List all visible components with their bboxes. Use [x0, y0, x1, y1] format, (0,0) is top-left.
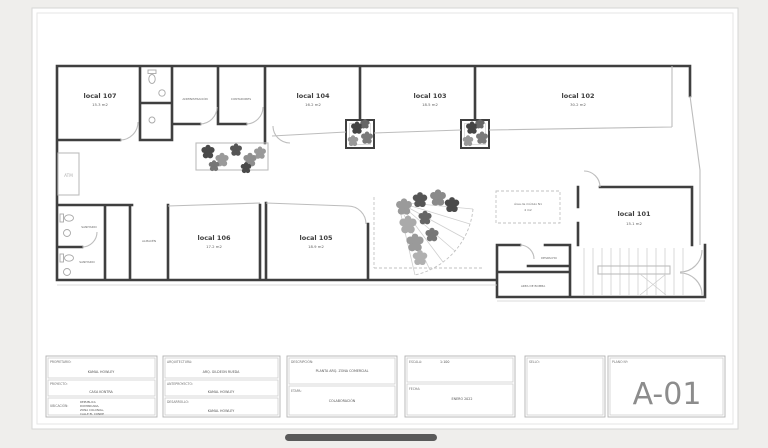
label-modulo-2: 4 m2 — [524, 208, 532, 212]
room-area-local-104: 16.2 m2 — [305, 102, 321, 107]
label-administracion: ADMINISTRACIÓN — [182, 96, 207, 101]
titleblock-anteproyecto-label: ANTEPROYECTO: — [167, 382, 193, 386]
titleblock-propietario-label: PROPIETARIO: — [50, 360, 71, 364]
titleblock-fecha-value: ENERO 2022 — [452, 397, 473, 401]
titleblock-escala-label: ESCALA: — [409, 360, 422, 364]
room-area-local-102: 30.2 m2 — [570, 102, 586, 107]
floorplan-canvas: local 107 15.3 m2 local 104 16.2 m2 loca… — [0, 0, 768, 448]
titleblock-ubicacion-line4: CALLE EL CONDE — [80, 412, 104, 416]
room-area-local-105: 18.9 m2 — [308, 244, 324, 249]
titleblock-plano-number: A-01 — [633, 377, 702, 412]
titleblock-fecha-label: FECHA: — [409, 387, 420, 391]
room-label-local-102: local 102 — [562, 92, 595, 100]
room-area-local-101: 15.1 m2 — [626, 221, 642, 226]
label-area-bomba: AREA DE BOMBA — [521, 284, 545, 288]
room-area-local-107: 15.3 m2 — [92, 102, 108, 107]
room-label-local-103: local 103 — [414, 92, 447, 100]
titleblock-desarrollo-label: DESARROLLO: — [167, 400, 189, 404]
room-label-local-107: local 107 — [84, 92, 117, 100]
label-modulo-1: Área de módulo N1 — [514, 201, 542, 206]
horizontal-scrollbar-thumb[interactable] — [285, 434, 437, 441]
titleblock-desarrollo-value: KAMAL HOWLEY — [208, 409, 236, 413]
sheet-border — [32, 8, 738, 429]
room-label-local-105: local 105 — [300, 234, 333, 242]
titleblock-sello-label: SELLO: — [529, 360, 540, 364]
titleblock-etapa-value: COLABORACIÓN — [329, 398, 356, 403]
titleblock-plano-label: PLANO Nº: — [612, 360, 628, 364]
label-contadores: CONTADORES — [231, 97, 251, 101]
titleblock-ubicacion-label: UBICACIÓN: — [50, 403, 68, 408]
screen: local 107 15.3 m2 local 104 16.2 m2 loca… — [0, 0, 768, 448]
label-atm: ATM — [64, 173, 73, 178]
titleblock-anteproyecto-value: KAMAL HOWLEY — [208, 390, 236, 394]
room-area-local-103: 18.5 m2 — [422, 102, 438, 107]
titleblock-descripcion-value: PLANTA ARQ. ZONA COMERCIAL — [316, 369, 369, 373]
titleblock-descripcion-label: DESCRIPCIÓN: — [291, 359, 313, 364]
titleblock-escala-value: 1:100 — [440, 360, 450, 364]
titleblock-propietario-value: KAMAL HOWLEY — [88, 370, 116, 374]
label-almacen: ALMACÉN — [142, 238, 156, 243]
titleblock-arquitectura-value: ARQ. GILDEON RUEDA — [203, 370, 241, 374]
titleblock-proyecto-label: PROYECTO: — [50, 382, 68, 386]
label-despacho: DESPACHO — [541, 256, 558, 260]
room-label-local-106: local 106 — [198, 234, 231, 242]
label-sanitario-1: SANITARIO — [81, 225, 97, 229]
titleblock-etapa-label: ETAPA: — [291, 389, 302, 393]
titleblock-arquitectura-label: ARQUITECTURA: — [167, 360, 192, 364]
label-sanitario-2: SANITARIO — [79, 260, 95, 264]
room-label-local-104: local 104 — [297, 92, 330, 100]
room-label-local-101: local 101 — [618, 210, 651, 218]
titleblock-proyecto-value: CASA KONTRA — [89, 390, 113, 394]
room-area-local-106: 17.2 m2 — [206, 244, 222, 249]
